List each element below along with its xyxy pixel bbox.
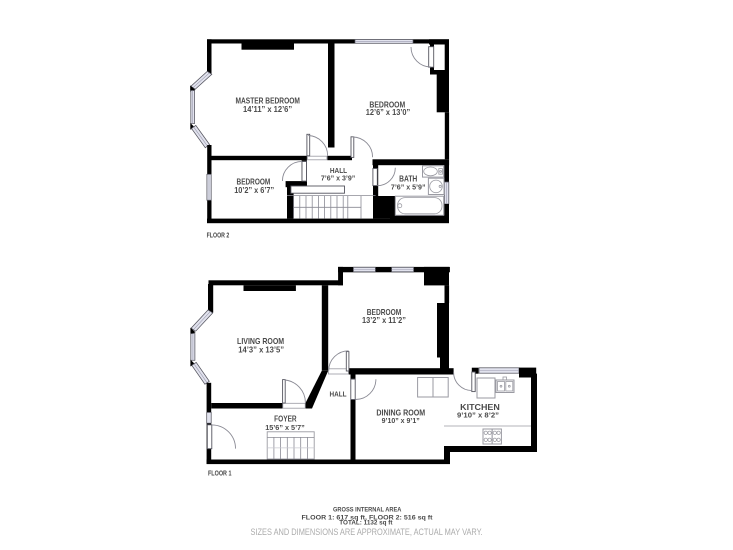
svg-text:15’6” x 5’7”: 15’6” x 5’7”	[265, 423, 305, 432]
svg-text:14’11” x 12’6”: 14’11” x 12’6”	[243, 105, 292, 114]
svg-text:FLOOR 1: FLOOR 1	[208, 469, 232, 478]
svg-text:12’6” x 13’0”: 12’6” x 13’0”	[366, 108, 410, 117]
svg-text:FLOOR 2: FLOOR 2	[207, 230, 230, 239]
svg-text:SIZES AND DIMENSIONS ARE APPRO: SIZES AND DIMENSIONS ARE APPROXIMATE, AC…	[251, 527, 483, 537]
svg-text:14’3” x 13’5”: 14’3” x 13’5”	[238, 345, 284, 354]
svg-text:9’10” x 8’2”: 9’10” x 8’2”	[457, 411, 499, 420]
svg-text:10’2” x 6’7”: 10’2” x 6’7”	[234, 186, 274, 195]
svg-text:7’6” x 5’9”: 7’6” x 5’9”	[391, 183, 426, 192]
svg-text:BEDROOM: BEDROOM	[237, 177, 271, 187]
svg-text:13’2” x 11’2”: 13’2” x 11’2”	[362, 316, 406, 325]
svg-text:HALL: HALL	[329, 389, 347, 398]
svg-text:MASTER BEDROOM: MASTER BEDROOM	[236, 95, 300, 105]
svg-text:TOTAL: 1132 sq ft: TOTAL: 1132 sq ft	[339, 520, 393, 527]
svg-text:GROSS INTERNAL AREA: GROSS INTERNAL AREA	[333, 507, 402, 514]
svg-text:9’10” x 9’1”: 9’10” x 9’1”	[382, 416, 420, 425]
svg-text:7’6” x 3’9”: 7’6” x 3’9”	[321, 173, 356, 182]
